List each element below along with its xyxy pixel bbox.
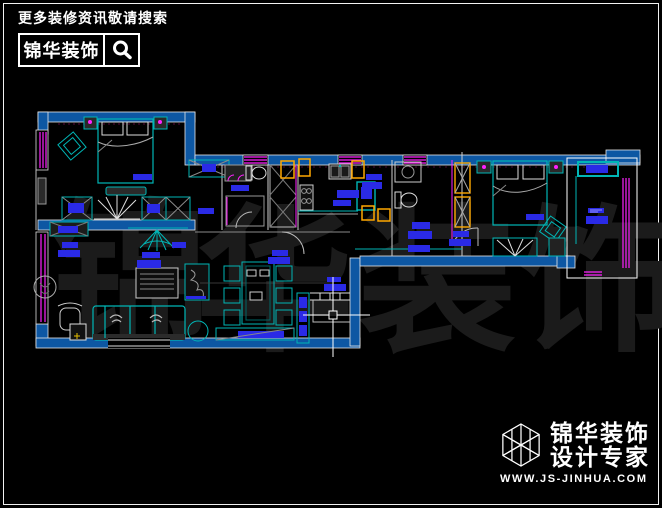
bed-bench [106, 187, 146, 195]
website-url[interactable]: WWW.JS-JINHUA.COM [500, 473, 650, 485]
dining-chairs [224, 266, 292, 325]
bed-label-block [133, 174, 152, 180]
header-brand-block: 更多装修资讯敬请搜索 锦华装饰 [18, 8, 168, 67]
label-block [412, 222, 430, 229]
brand-name: 锦华装饰 [20, 35, 103, 65]
label-block [58, 226, 78, 233]
label-block [268, 257, 290, 264]
label-block [366, 174, 382, 180]
entry [297, 277, 350, 343]
label-block [272, 250, 288, 256]
master-bedroom [449, 161, 566, 256]
label-block [453, 231, 469, 237]
balcony-window [584, 178, 629, 275]
label-block [324, 284, 346, 291]
shoe-cabinet [297, 293, 309, 343]
toilet [395, 192, 417, 208]
washing-machine [586, 208, 608, 224]
lounge-chair [58, 132, 86, 160]
label-block [142, 252, 160, 258]
cad-image-viewport[interactable]: 锦 华 装 饰 [0, 0, 662, 508]
shower [226, 196, 264, 226]
sofa [93, 306, 185, 340]
dining-area [216, 250, 294, 340]
label-block [198, 208, 214, 214]
door-frame [378, 209, 390, 221]
wireframe-cube-icon [500, 420, 542, 470]
balcony [567, 158, 637, 278]
label-block [449, 239, 471, 246]
label-block [333, 200, 351, 206]
label-block [408, 245, 430, 252]
label-block [231, 185, 249, 191]
search-button[interactable] [103, 35, 138, 65]
double-bed [98, 119, 153, 183]
coffee-table [136, 268, 178, 298]
footer-logo-block: 锦华装饰 设计专家 WWW.JS-JINHUA.COM [500, 420, 650, 485]
brand-search-box[interactable]: 锦华装饰 [18, 33, 140, 67]
label-block [62, 242, 78, 248]
double-sink [329, 164, 351, 179]
label-block [172, 242, 186, 248]
desk-chair [58, 303, 86, 340]
basin [402, 166, 414, 178]
exterior-walls [36, 112, 640, 348]
label-block [362, 182, 382, 189]
bathroom-2 [362, 160, 470, 252]
dresser [549, 238, 565, 256]
pillow [523, 165, 544, 179]
bed-label-block [526, 214, 544, 220]
label-block [58, 250, 80, 257]
label-block [137, 260, 161, 268]
bottom-door-gap [108, 338, 170, 348]
hall-cabinet [189, 160, 229, 214]
bedroom-left [58, 117, 190, 220]
gas-stove [300, 185, 313, 210]
shower-shaft [452, 160, 470, 240]
search-hint-text: 更多装修资讯敬请搜索 [18, 8, 168, 28]
footer-subtitle: 设计专家 [550, 445, 650, 469]
wardrobe [493, 238, 537, 256]
planter [185, 264, 209, 300]
label-block [337, 190, 359, 198]
footer-brand-name: 锦华装饰 [550, 421, 650, 445]
bathroom-1 [225, 165, 266, 228]
bedroom-door-fan [94, 195, 140, 219]
threshold [310, 293, 350, 322]
door-frame [362, 206, 374, 220]
magnifier-icon [111, 39, 133, 61]
label-block [408, 231, 432, 239]
label-block [327, 277, 341, 282]
